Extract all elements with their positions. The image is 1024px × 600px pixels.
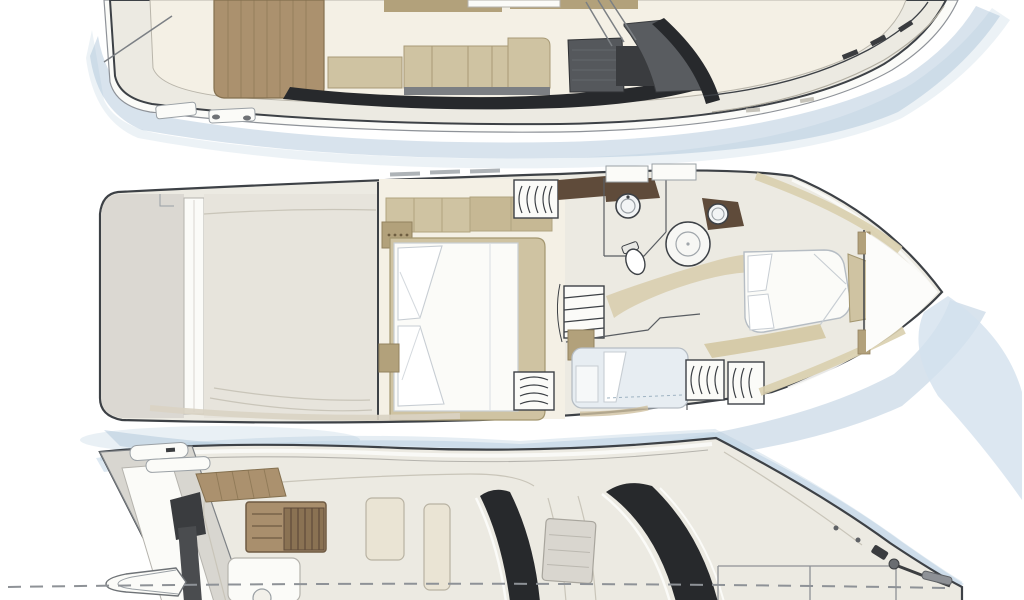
wardrobe-hangers-icon xyxy=(514,372,554,410)
wardrobe-hangers-icon xyxy=(686,360,724,400)
master-cabin xyxy=(379,179,565,420)
cleat-icon xyxy=(212,115,220,120)
overhead-cabinet xyxy=(652,164,696,180)
stern-platform xyxy=(101,194,184,418)
antenna-pod xyxy=(146,456,211,472)
teak-cockpit xyxy=(214,0,324,98)
galley-block xyxy=(568,38,624,92)
dinette-table xyxy=(468,0,560,7)
sink-icon xyxy=(616,194,640,218)
saloon-sofa xyxy=(404,46,510,88)
sunroof-hatch xyxy=(542,518,596,583)
closet-counter xyxy=(558,176,606,200)
shower-icon xyxy=(666,222,710,266)
flybridge-bench xyxy=(366,498,404,560)
main-deck-plan xyxy=(86,0,1010,168)
saloon-chaise xyxy=(508,38,550,88)
sink-icon xyxy=(708,204,728,224)
cleat-icon xyxy=(243,116,251,121)
flybridge-stairs xyxy=(246,502,326,552)
cleat-icon xyxy=(834,526,839,531)
sofa-floor-strip xyxy=(404,87,550,95)
flybridge-deck-plan xyxy=(8,432,964,600)
yacht-deck-plans xyxy=(0,0,1024,600)
wardrobe-hangers-icon xyxy=(728,362,764,404)
side-cabinet xyxy=(328,57,402,88)
wardrobe-hangers-icon xyxy=(514,180,558,218)
overhead-cabinet xyxy=(606,166,648,182)
flybridge-bench xyxy=(424,504,450,590)
yacht-plans-canvas xyxy=(0,0,1024,600)
cleat-icon xyxy=(856,538,861,543)
bedside-cabinet xyxy=(379,344,399,372)
tender-garage xyxy=(204,194,378,418)
passerelle xyxy=(106,568,186,596)
teak-step-pad xyxy=(196,468,286,502)
